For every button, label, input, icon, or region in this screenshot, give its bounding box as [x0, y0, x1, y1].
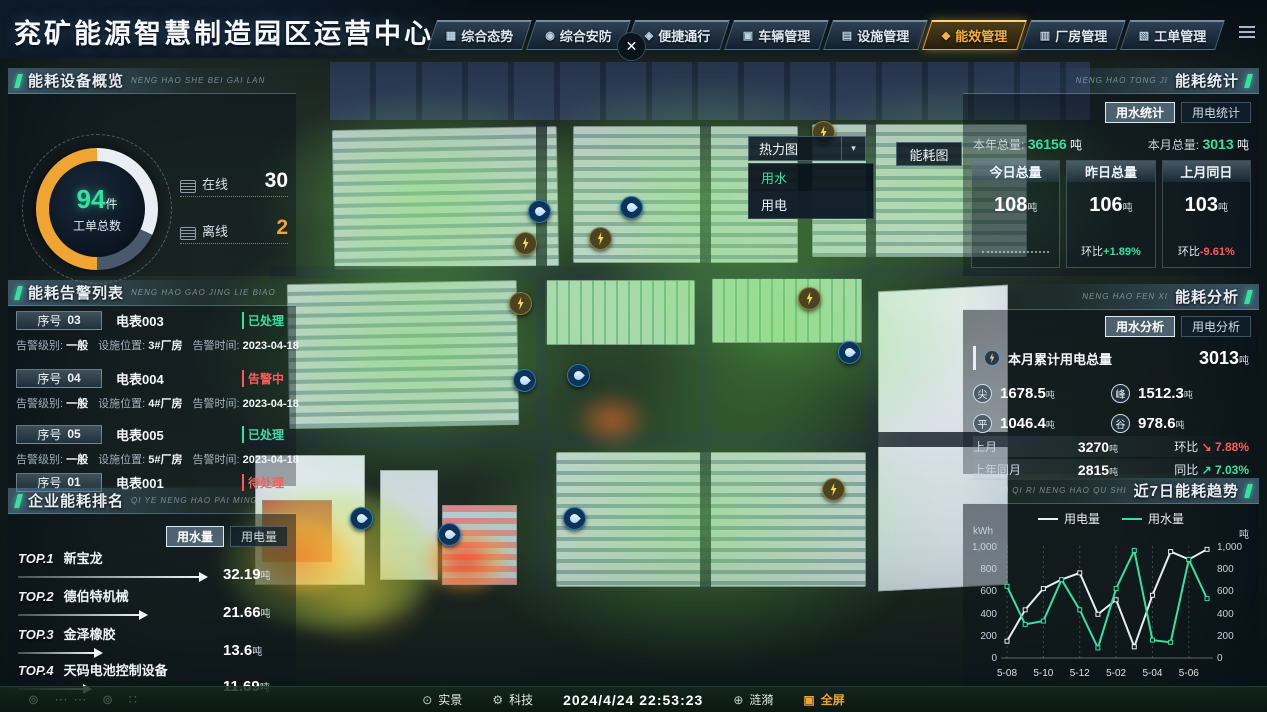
stats-column-unit: 吨 — [1027, 203, 1037, 214]
leader-line — [180, 193, 288, 197]
header-notch — [1244, 484, 1253, 498]
seq-label: 序号 — [37, 370, 61, 387]
ranking-item: TOP.3金泽橡胶13.6吨 — [18, 624, 286, 658]
tab-electric-stats[interactable]: 用电统计 — [1181, 102, 1251, 123]
scene-icon: ⊙ — [422, 693, 432, 707]
alarm-list-item[interactable]: 序号03电表003已处理告警级别: 一般设施位置: 3#厂房告警时间: 2023… — [16, 310, 288, 353]
x-axis-label: 5-06 — [1179, 668, 1199, 679]
tech-icon: ⚙ — [492, 693, 503, 707]
water-drop-icon[interactable] — [513, 369, 536, 392]
alarm-device-name: 电表004 — [116, 369, 242, 388]
compare-label: 上月 — [973, 438, 1043, 455]
lightning-icon[interactable] — [798, 287, 821, 310]
online-label: 在线 — [202, 174, 259, 193]
compare-label: 上年同月 — [973, 461, 1043, 478]
chart-legend: 用电量用水量 — [963, 510, 1259, 527]
heatmap-dropdown[interactable]: 热力图 ▾ 用水 用电 — [748, 136, 866, 161]
panel-title: 近7日能耗趋势 — [1134, 480, 1239, 501]
stats-column-value: 103吨 — [1163, 194, 1250, 217]
axis-tick: 0 — [1217, 653, 1247, 664]
year-total-value: 36156 — [1028, 136, 1067, 152]
tou-key-icon: 谷 — [1111, 414, 1130, 433]
x-axis-label: 5-12 — [1070, 668, 1090, 679]
tou-value: 1678.5吨 — [1000, 385, 1055, 402]
legend-item: 用水量 — [1122, 510, 1184, 527]
footer-button-全屏[interactable]: ▣全屏 — [803, 691, 844, 708]
map-building — [380, 470, 438, 580]
seq-value: 03 — [67, 313, 80, 327]
month-electric-total-label: 本月累计用电总量 — [1008, 349, 1191, 368]
alarm-device-name: 电表003 — [116, 311, 242, 330]
water-drop-icon[interactable] — [620, 196, 643, 219]
delta-value: +1.89% — [1103, 246, 1141, 258]
rank-label: TOP.3 — [18, 627, 54, 642]
ranking-bar — [18, 576, 200, 578]
totals-row: 本年总量: 36156 吨 本月总量: 3013 吨 — [973, 136, 1249, 153]
offline-stat: 离线 2 — [180, 216, 288, 244]
x-axis-labels: 5-085-105-125-025-045-06 — [1001, 668, 1221, 682]
stats-column-delta: 环比-9.61% — [1163, 243, 1250, 259]
footer-button-label: 实景 — [438, 691, 462, 708]
year-total-label: 本年总量: — [973, 138, 1024, 152]
tou-unit: 吨 — [1046, 420, 1055, 430]
company-name: 德伯特机械 — [64, 586, 129, 605]
axis-tick: 1,000 — [967, 542, 997, 553]
alarm-status-badge: 已处理 — [242, 426, 288, 443]
alarm-list-panel: 能耗告警列表 NENG HAO GAO JING LIE BIAO 序号03电表… — [8, 280, 296, 486]
tou-cell: 峰1512.3吨 — [1111, 378, 1249, 408]
rank-label: TOP.1 — [18, 551, 54, 566]
axis-tick: 0 — [967, 653, 997, 664]
meter-icon — [180, 180, 196, 193]
panel-title: 能耗分析 — [1175, 286, 1239, 307]
tou-value: 1512.3吨 — [1138, 385, 1193, 402]
footer-datetime: 2024/4/24 22:53:23 — [563, 692, 703, 708]
alarm-detail: 告警时间: 2023-04-18 — [193, 337, 299, 353]
tab-label: 便捷通行 — [658, 26, 710, 45]
panel-subtitle: NENG HAO GAO JING LIE BIAO — [131, 288, 276, 297]
trend-chart-svg — [1001, 542, 1213, 664]
tou-key-icon: 峰 — [1111, 384, 1130, 403]
stats-column: 昨日总量106吨环比+1.89% — [1066, 160, 1155, 268]
tab-综合态势[interactable]: ▦综合态势 — [432, 20, 527, 50]
tou-cell: 谷978.6吨 — [1111, 408, 1249, 438]
stats-column-unit: 吨 — [1123, 203, 1133, 214]
company-name: 金泽橡胶 — [64, 624, 116, 643]
footer-button-实景[interactable]: ⊙实景 — [422, 691, 462, 708]
header-notch — [1244, 74, 1253, 88]
compare-value: 2815吨 — [1043, 462, 1153, 478]
tab-综合安防[interactable]: ◉综合安防 — [531, 20, 626, 50]
axis-tick: 800 — [1217, 564, 1247, 575]
compare-unit: 吨 — [1109, 467, 1118, 477]
compare-unit: 吨 — [1109, 444, 1118, 454]
month-electric-total-value: 3013 — [1199, 348, 1239, 368]
legend-line — [1038, 518, 1058, 520]
legend-line — [1122, 518, 1142, 520]
tab-label: 能效管理 — [955, 26, 1007, 45]
online-stat: 在线 30 — [180, 169, 288, 197]
tab-label: 综合安防 — [560, 26, 612, 45]
tab-车辆管理[interactable]: ▣车辆管理 — [729, 20, 824, 50]
lightning-icon — [984, 350, 1000, 366]
axis-tick: 400 — [967, 609, 997, 620]
stats-column: 上月同日103吨环比-9.61% — [1162, 160, 1251, 268]
trend-chart: 1,0008006004002000 1,0008006004002000 — [967, 542, 1255, 664]
tou-unit: 吨 — [1046, 390, 1055, 400]
stats-column-header: 上月同日 — [1163, 161, 1250, 182]
gauge-label: 工单总数 — [73, 217, 121, 234]
stats-column-header: 昨日总量 — [1067, 161, 1154, 182]
menu-icon[interactable] — [1239, 24, 1255, 38]
compare-row: 上年同月2815吨同比 ↗ 7.03% — [973, 459, 1249, 480]
seq-label: 序号 — [37, 312, 61, 329]
alarm-detail: 告警时间: 2023-04-18 — [193, 395, 299, 411]
panel-subtitle: JIN QI RI NENG HAO QU SHI — [994, 486, 1127, 495]
stats-column-value: 108吨 — [972, 194, 1059, 217]
alarm-seq-badge: 序号04 — [16, 369, 102, 388]
tou-key-icon: 平 — [973, 414, 992, 433]
tab-label: 设施管理 — [857, 26, 909, 45]
lightning-icon[interactable] — [514, 232, 537, 255]
ranking-item: TOP.2德伯特机械21.66吨 — [18, 586, 286, 620]
axis-tick: 800 — [967, 564, 997, 575]
lightning-icon[interactable] — [822, 478, 845, 501]
panel-subtitle: QI YE NENG HAO PAI MING — [131, 496, 258, 505]
ranking-value: 13.6吨 — [223, 642, 262, 659]
legend-label: 用水量 — [1148, 510, 1184, 527]
compare-pct: 环比 ↘ 7.88% — [1153, 438, 1249, 455]
stats-column-header: 今日总量 — [972, 161, 1059, 182]
panel-subtitle: NENG HAO TONG JI — [1076, 76, 1168, 85]
tou-unit: 吨 — [1176, 420, 1185, 430]
month-total-label: 本月总量: — [1148, 138, 1199, 152]
panel-title: 能耗统计 — [1175, 70, 1239, 91]
footer-button-涟漪[interactable]: ⊕涟漪 — [733, 691, 773, 708]
tab-water-analysis[interactable]: 用水分析 — [1105, 316, 1175, 337]
map-greenhouse — [712, 278, 862, 343]
year-total-unit: 吨 — [1070, 138, 1082, 152]
workorder-gauge: 94件 工单总数 — [22, 134, 172, 284]
month-total-value: 3013 — [1202, 136, 1233, 152]
heatmap-dropdown-label: 热力图 — [749, 139, 841, 158]
trend-arrow-icon: ↘ 7.88% — [1202, 440, 1249, 454]
map-road — [250, 432, 1040, 447]
panel-subtitle: NENG HAO FEN XI — [1082, 292, 1168, 301]
ranking-panel: 企业能耗排名 QI YE NENG HAO PAI MING 用水量 用电量 T… — [8, 488, 296, 686]
rank-label: TOP.4 — [18, 663, 54, 678]
water-drop-icon[interactable] — [838, 341, 861, 364]
dropdown-option-electric[interactable]: 用电 — [749, 191, 873, 218]
water-drop-icon[interactable] — [438, 523, 461, 546]
header-notch — [14, 286, 23, 300]
workorder-icon: ▧ — [1139, 29, 1149, 42]
axis-tick: 1,000 — [1217, 542, 1247, 553]
month-electric-total: 本月累计用电总量 3013吨 — [973, 346, 1249, 370]
right-axis-title: 吨 — [1239, 526, 1249, 541]
alarm-detail: 设施位置: 3#厂房 — [98, 337, 182, 353]
seq-value: 01 — [67, 475, 80, 489]
x-axis-label: 5-10 — [1033, 668, 1053, 679]
footer-button-label: 全屏 — [821, 691, 845, 708]
device-overview-panel: 能耗设备概览 NENG HAO SHE BEI GAI LAN 94件 工单总数… — [8, 68, 296, 276]
header-notch — [1244, 290, 1253, 304]
facility-icon: ▤ — [842, 29, 852, 42]
tab-water-stats[interactable]: 用水统计 — [1105, 102, 1175, 123]
dotted-indicator — [982, 251, 1049, 253]
left-axis-title: kWh — [973, 526, 993, 537]
gauge-unit: 件 — [105, 197, 117, 211]
map-building — [287, 280, 519, 429]
compare-value: 3270吨 — [1043, 439, 1153, 455]
stats-column-delta: 环比+1.89% — [1067, 243, 1154, 259]
ranking-bar — [18, 614, 140, 616]
seq-value: 04 — [67, 371, 80, 385]
month-electric-total-unit: 吨 — [1239, 356, 1249, 367]
tab-厂房管理[interactable]: ▥厂房管理 — [1026, 20, 1121, 50]
panel-subtitle: NENG HAO SHE BEI GAI LAN — [131, 76, 265, 85]
ranking-unit: 吨 — [252, 647, 262, 658]
chevron-down-icon[interactable]: ▾ — [841, 137, 865, 160]
ranking-bar — [18, 652, 95, 654]
ranking-unit: 吨 — [261, 571, 271, 582]
online-value: 30 — [265, 169, 288, 193]
panel-title: 企业能耗排名 — [28, 490, 124, 511]
compare-row: 上月3270吨环比 ↘ 7.88% — [973, 436, 1249, 457]
seq-value: 05 — [67, 427, 80, 441]
alarm-list-item[interactable]: 序号05电表005已处理告警级别: 一般设施位置: 5#厂房告警时间: 2023… — [16, 424, 288, 467]
header-notch — [14, 494, 23, 508]
leader-line — [180, 240, 288, 244]
company-name: 新宝龙 — [64, 548, 103, 567]
axis-tick: 400 — [1217, 609, 1247, 620]
panel-title: 能耗告警列表 — [28, 282, 124, 303]
alarm-seq-badge: 序号03 — [16, 311, 102, 330]
alarm-detail: 告警级别: 一般 — [16, 451, 88, 467]
alarm-status-badge: 已处理 — [242, 312, 288, 329]
alarm-status-badge: 告警中 — [242, 370, 288, 387]
tab-label: 车辆管理 — [758, 26, 810, 45]
axis-tick: 600 — [967, 586, 997, 597]
map-greenhouse — [545, 280, 695, 345]
alarm-list-item[interactable]: 序号04电表004告警中告警级别: 一般设施位置: 4#厂房告警时间: 2023… — [16, 368, 288, 411]
nav-tabs: ▦综合态势◉综合安防◈便捷通行▣车辆管理▤设施管理◆能效管理▥厂房管理▧工单管理 — [432, 20, 1220, 50]
map-road — [700, 122, 711, 592]
energy-stats-panel: 能耗统计 NENG HAO TONG JI 用水统计 用电统计 本年总量: 36… — [963, 68, 1259, 276]
water-drop-icon[interactable] — [563, 507, 586, 530]
tab-label: 工单管理 — [1154, 26, 1206, 45]
footer-decoration: ⊚ ⋯⋯ ⊚ ∷ — [28, 692, 143, 708]
fullscreen-icon: ▣ — [803, 693, 814, 707]
tou-value: 1046.4吨 — [1000, 415, 1055, 432]
tou-cell: 平1046.4吨 — [973, 408, 1111, 438]
tou-value: 978.6吨 — [1138, 415, 1185, 432]
dropdown-option-water[interactable]: 用水 — [749, 164, 873, 191]
offline-label: 离线 — [202, 221, 270, 240]
footer-bar: ⊚ ⋯⋯ ⊚ ∷ ⊙实景⚙科技2024/4/24 22:53:23⊕涟漪▣全屏 — [0, 686, 1267, 712]
water-drop-icon[interactable] — [350, 507, 373, 530]
alarm-detail: 设施位置: 5#厂房 — [98, 451, 182, 467]
panel-title: 能耗设备概览 — [28, 70, 124, 91]
lightning-icon[interactable] — [509, 292, 532, 315]
tou-unit: 吨 — [1184, 390, 1193, 400]
map-road — [536, 122, 547, 592]
month-total-unit: 吨 — [1237, 138, 1249, 152]
x-axis-label: 5-02 — [1106, 668, 1126, 679]
tab-label: 综合态势 — [461, 26, 513, 45]
access-icon: ◈ — [645, 29, 653, 42]
vehicle-icon: ▣ — [743, 29, 753, 42]
left-axis-ticks: 1,0008006004002000 — [967, 542, 1001, 664]
alarm-detail: 告警级别: 一般 — [16, 395, 88, 411]
footer-button-label: 涟漪 — [749, 691, 773, 708]
alarm-detail: 设施位置: 4#厂房 — [98, 395, 182, 411]
ranking-item: TOP.1新宝龙32.19吨 — [18, 548, 286, 582]
footer-button-label: 科技 — [509, 691, 533, 708]
tab-能效管理[interactable]: ◆能效管理 — [927, 20, 1022, 50]
tab-工单管理[interactable]: ▧工单管理 — [1125, 20, 1220, 50]
situation-icon: ▦ — [446, 29, 456, 42]
x-axis-label: 5-08 — [997, 668, 1017, 679]
alarm-detail: 告警时间: 2023-04-18 — [193, 451, 299, 467]
alarm-detail: 告警级别: 一般 — [16, 337, 88, 353]
lightning-icon[interactable] — [589, 227, 612, 250]
trend-arrow-icon: ↗ 7.03% — [1202, 463, 1249, 477]
close-button[interactable]: ✕ — [617, 32, 646, 61]
axis-tick: 200 — [1217, 631, 1247, 642]
map-building — [556, 452, 866, 587]
energy-analysis-panel: 能耗分析 NENG HAO FEN XI 用水分析 用电分析 本月累计用电总量 … — [963, 284, 1259, 474]
alarm-seq-badge: 序号05 — [16, 425, 102, 444]
header-notch — [14, 74, 23, 88]
x-axis-label: 5-04 — [1142, 668, 1162, 679]
tab-electric-analysis[interactable]: 用电分析 — [1181, 316, 1251, 337]
ripple-icon: ⊕ — [733, 693, 743, 707]
footer-button-科技[interactable]: ⚙科技 — [492, 691, 533, 708]
seq-label: 序号 — [37, 426, 61, 443]
toggle-water-volume[interactable]: 用水量 — [166, 526, 224, 547]
gauge-ring: 94件 工单总数 — [36, 148, 158, 270]
axis-tick: 200 — [967, 631, 997, 642]
company-name: 天码电池控制设备 — [64, 660, 168, 679]
plant-icon: ▥ — [1040, 29, 1050, 42]
tou-key-icon: 尖 — [973, 384, 992, 403]
right-axis-ticks: 1,0008006004002000 — [1213, 542, 1247, 664]
tab-设施管理[interactable]: ▤设施管理 — [828, 20, 923, 50]
water-drop-icon[interactable] — [567, 364, 590, 387]
tou-cell: 尖1678.5吨 — [973, 378, 1111, 408]
page-title: 兖矿能源智慧制造园区运营中心 — [14, 12, 434, 51]
energy-icon: ◆ — [942, 29, 950, 42]
delta-value: -9.61% — [1200, 246, 1235, 258]
rank-label: TOP.2 — [18, 589, 54, 604]
ranking-unit: 吨 — [261, 609, 271, 620]
offline-value: 2 — [276, 216, 288, 240]
tab-label: 厂房管理 — [1055, 26, 1107, 45]
gauge-value: 94 — [77, 184, 106, 214]
ranking-value: 32.19吨 — [223, 566, 271, 583]
ranking-value: 21.66吨 — [223, 604, 271, 621]
trend-panel: 近7日能耗趋势 JIN QI RI NENG HAO QU SHI 用电量用水量… — [963, 478, 1259, 686]
stats-column-value: 106吨 — [1067, 194, 1154, 217]
axis-tick: 600 — [1217, 586, 1247, 597]
stats-column-unit: 吨 — [1218, 203, 1228, 214]
legend-item: 用电量 — [1038, 510, 1100, 527]
stats-column: 今日总量108吨 — [971, 160, 1060, 268]
meter-icon — [180, 227, 196, 240]
heatmap-dropdown-menu: 用水 用电 — [748, 163, 874, 219]
map-road — [270, 266, 1040, 279]
toggle-electric-volume[interactable]: 用电量 — [230, 526, 288, 547]
water-drop-icon[interactable] — [528, 200, 551, 223]
energy-map-button[interactable]: 能耗图 — [896, 142, 962, 166]
compare-pct: 同比 ↗ 7.03% — [1153, 461, 1249, 478]
security-icon: ◉ — [545, 29, 555, 42]
alarm-device-name: 电表005 — [116, 425, 242, 444]
legend-label: 用电量 — [1064, 510, 1100, 527]
